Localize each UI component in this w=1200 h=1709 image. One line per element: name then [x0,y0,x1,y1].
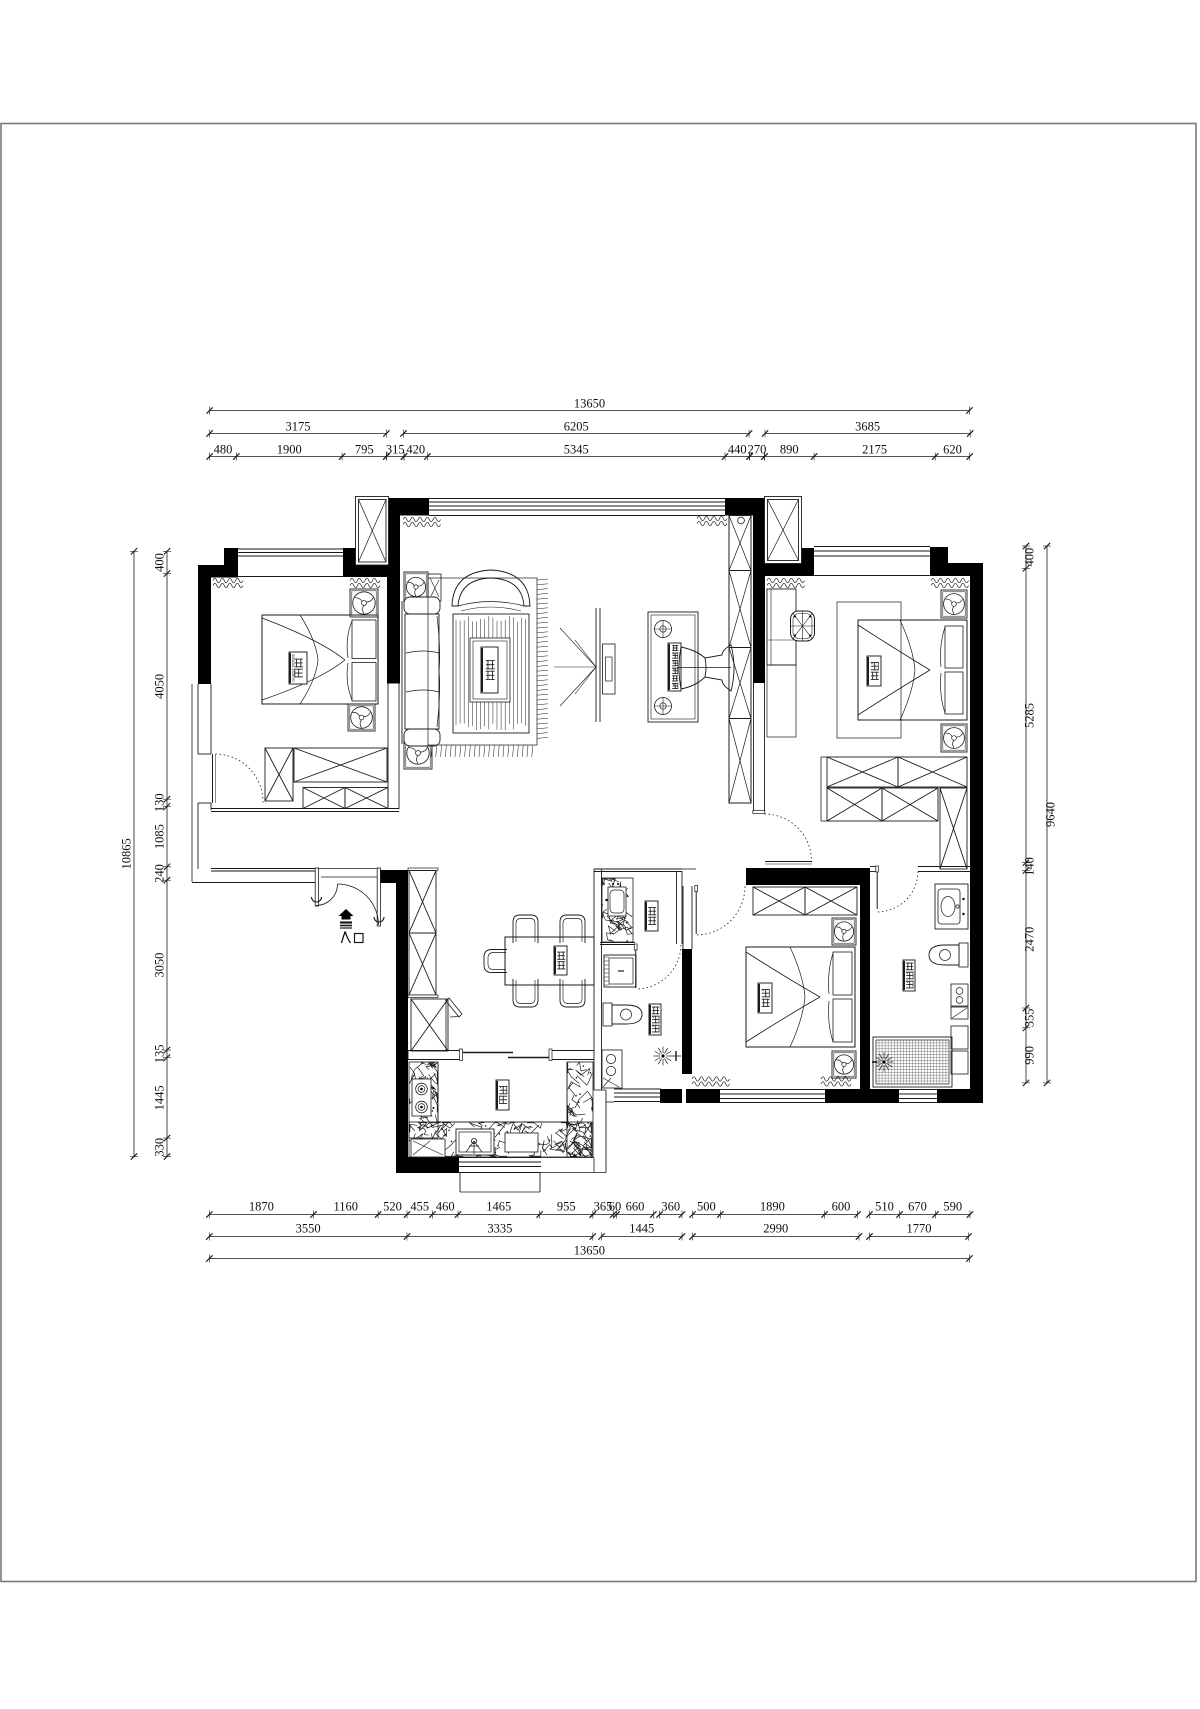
svg-text:3335: 3335 [487,1222,512,1236]
svg-text:270: 270 [748,443,767,457]
svg-text:795: 795 [355,443,374,457]
svg-text:620: 620 [943,443,962,457]
svg-text:9640: 9640 [1044,802,1058,827]
svg-text:13650: 13650 [574,397,605,411]
svg-text:13650: 13650 [574,1244,605,1258]
svg-text:600: 600 [832,1200,851,1214]
svg-text:5345: 5345 [564,443,589,457]
svg-text:10865: 10865 [120,838,134,869]
svg-text:130: 130 [153,793,167,812]
svg-text:500: 500 [697,1200,716,1214]
svg-text:3175: 3175 [286,420,311,434]
svg-text:1445: 1445 [629,1222,654,1236]
svg-text:GUEST ROOM: GUEST ROOM [291,654,296,681]
svg-text:420: 420 [406,443,425,457]
svg-text:135: 135 [153,1044,167,1063]
svg-text:6205: 6205 [564,420,589,434]
svg-text:510: 510 [875,1200,894,1214]
svg-text:955: 955 [557,1200,576,1214]
svg-text:400: 400 [1023,548,1037,567]
svg-text:1160: 1160 [334,1200,359,1214]
svg-text:1465: 1465 [486,1200,511,1214]
svg-text:240: 240 [153,864,167,883]
svg-text:5285: 5285 [1023,703,1037,728]
svg-text:890: 890 [780,443,799,457]
svg-text:1890: 1890 [760,1200,785,1214]
svg-text:1870: 1870 [249,1200,274,1214]
svg-text:520: 520 [383,1200,402,1214]
svg-text:2990: 2990 [763,1222,788,1236]
svg-text:4050: 4050 [153,674,167,699]
svg-text:1445: 1445 [153,1085,167,1110]
svg-text:990: 990 [1023,1046,1037,1065]
svg-text:1770: 1770 [907,1222,932,1236]
svg-text:460: 460 [436,1200,455,1214]
svg-text:440: 440 [728,443,747,457]
svg-text:360: 360 [661,1200,680,1214]
svg-text:60: 60 [609,1200,622,1214]
svg-text:355: 355 [1023,1009,1037,1028]
svg-text:315: 315 [386,443,405,457]
svg-text:480: 480 [214,443,233,457]
svg-text:2470: 2470 [1023,927,1037,952]
svg-text:140: 140 [1023,857,1037,876]
svg-text:660: 660 [626,1200,645,1214]
svg-text:455: 455 [410,1200,429,1214]
svg-text:670: 670 [908,1200,927,1214]
svg-text:1900: 1900 [277,443,302,457]
svg-text:590: 590 [943,1200,962,1214]
svg-text:3550: 3550 [296,1222,321,1236]
svg-text:2175: 2175 [862,443,887,457]
svg-text:3050: 3050 [153,953,167,978]
svg-text:1085: 1085 [153,824,167,849]
svg-text:400: 400 [153,553,167,572]
svg-text:3685: 3685 [855,420,880,434]
svg-text:330: 330 [153,1138,167,1157]
